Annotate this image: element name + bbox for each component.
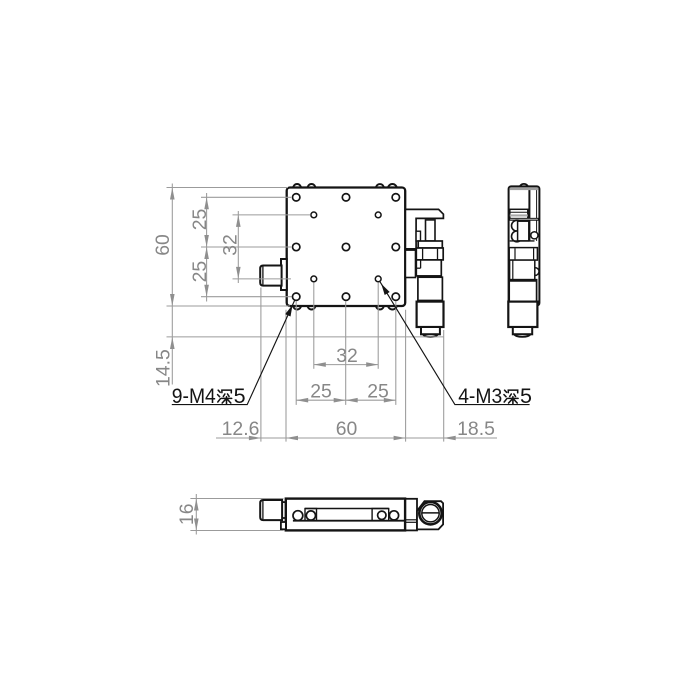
svg-text:60: 60	[336, 418, 358, 440]
svg-text:25: 25	[189, 261, 211, 283]
svg-text:25: 25	[367, 380, 389, 402]
svg-text:25: 25	[310, 380, 332, 402]
svg-text:5: 5	[234, 384, 246, 408]
svg-text:16: 16	[176, 504, 198, 526]
svg-text:18.5: 18.5	[457, 418, 495, 440]
svg-text:14.5: 14.5	[153, 349, 175, 387]
svg-text:60: 60	[152, 234, 174, 256]
svg-text:25: 25	[189, 209, 211, 231]
svg-text:9-M4: 9-M4	[172, 384, 216, 408]
svg-text:32: 32	[336, 345, 358, 367]
svg-text:32: 32	[220, 234, 242, 256]
svg-text:12.6: 12.6	[222, 418, 260, 440]
svg-text:4-M3: 4-M3	[458, 384, 502, 408]
svg-text:5: 5	[520, 384, 532, 408]
